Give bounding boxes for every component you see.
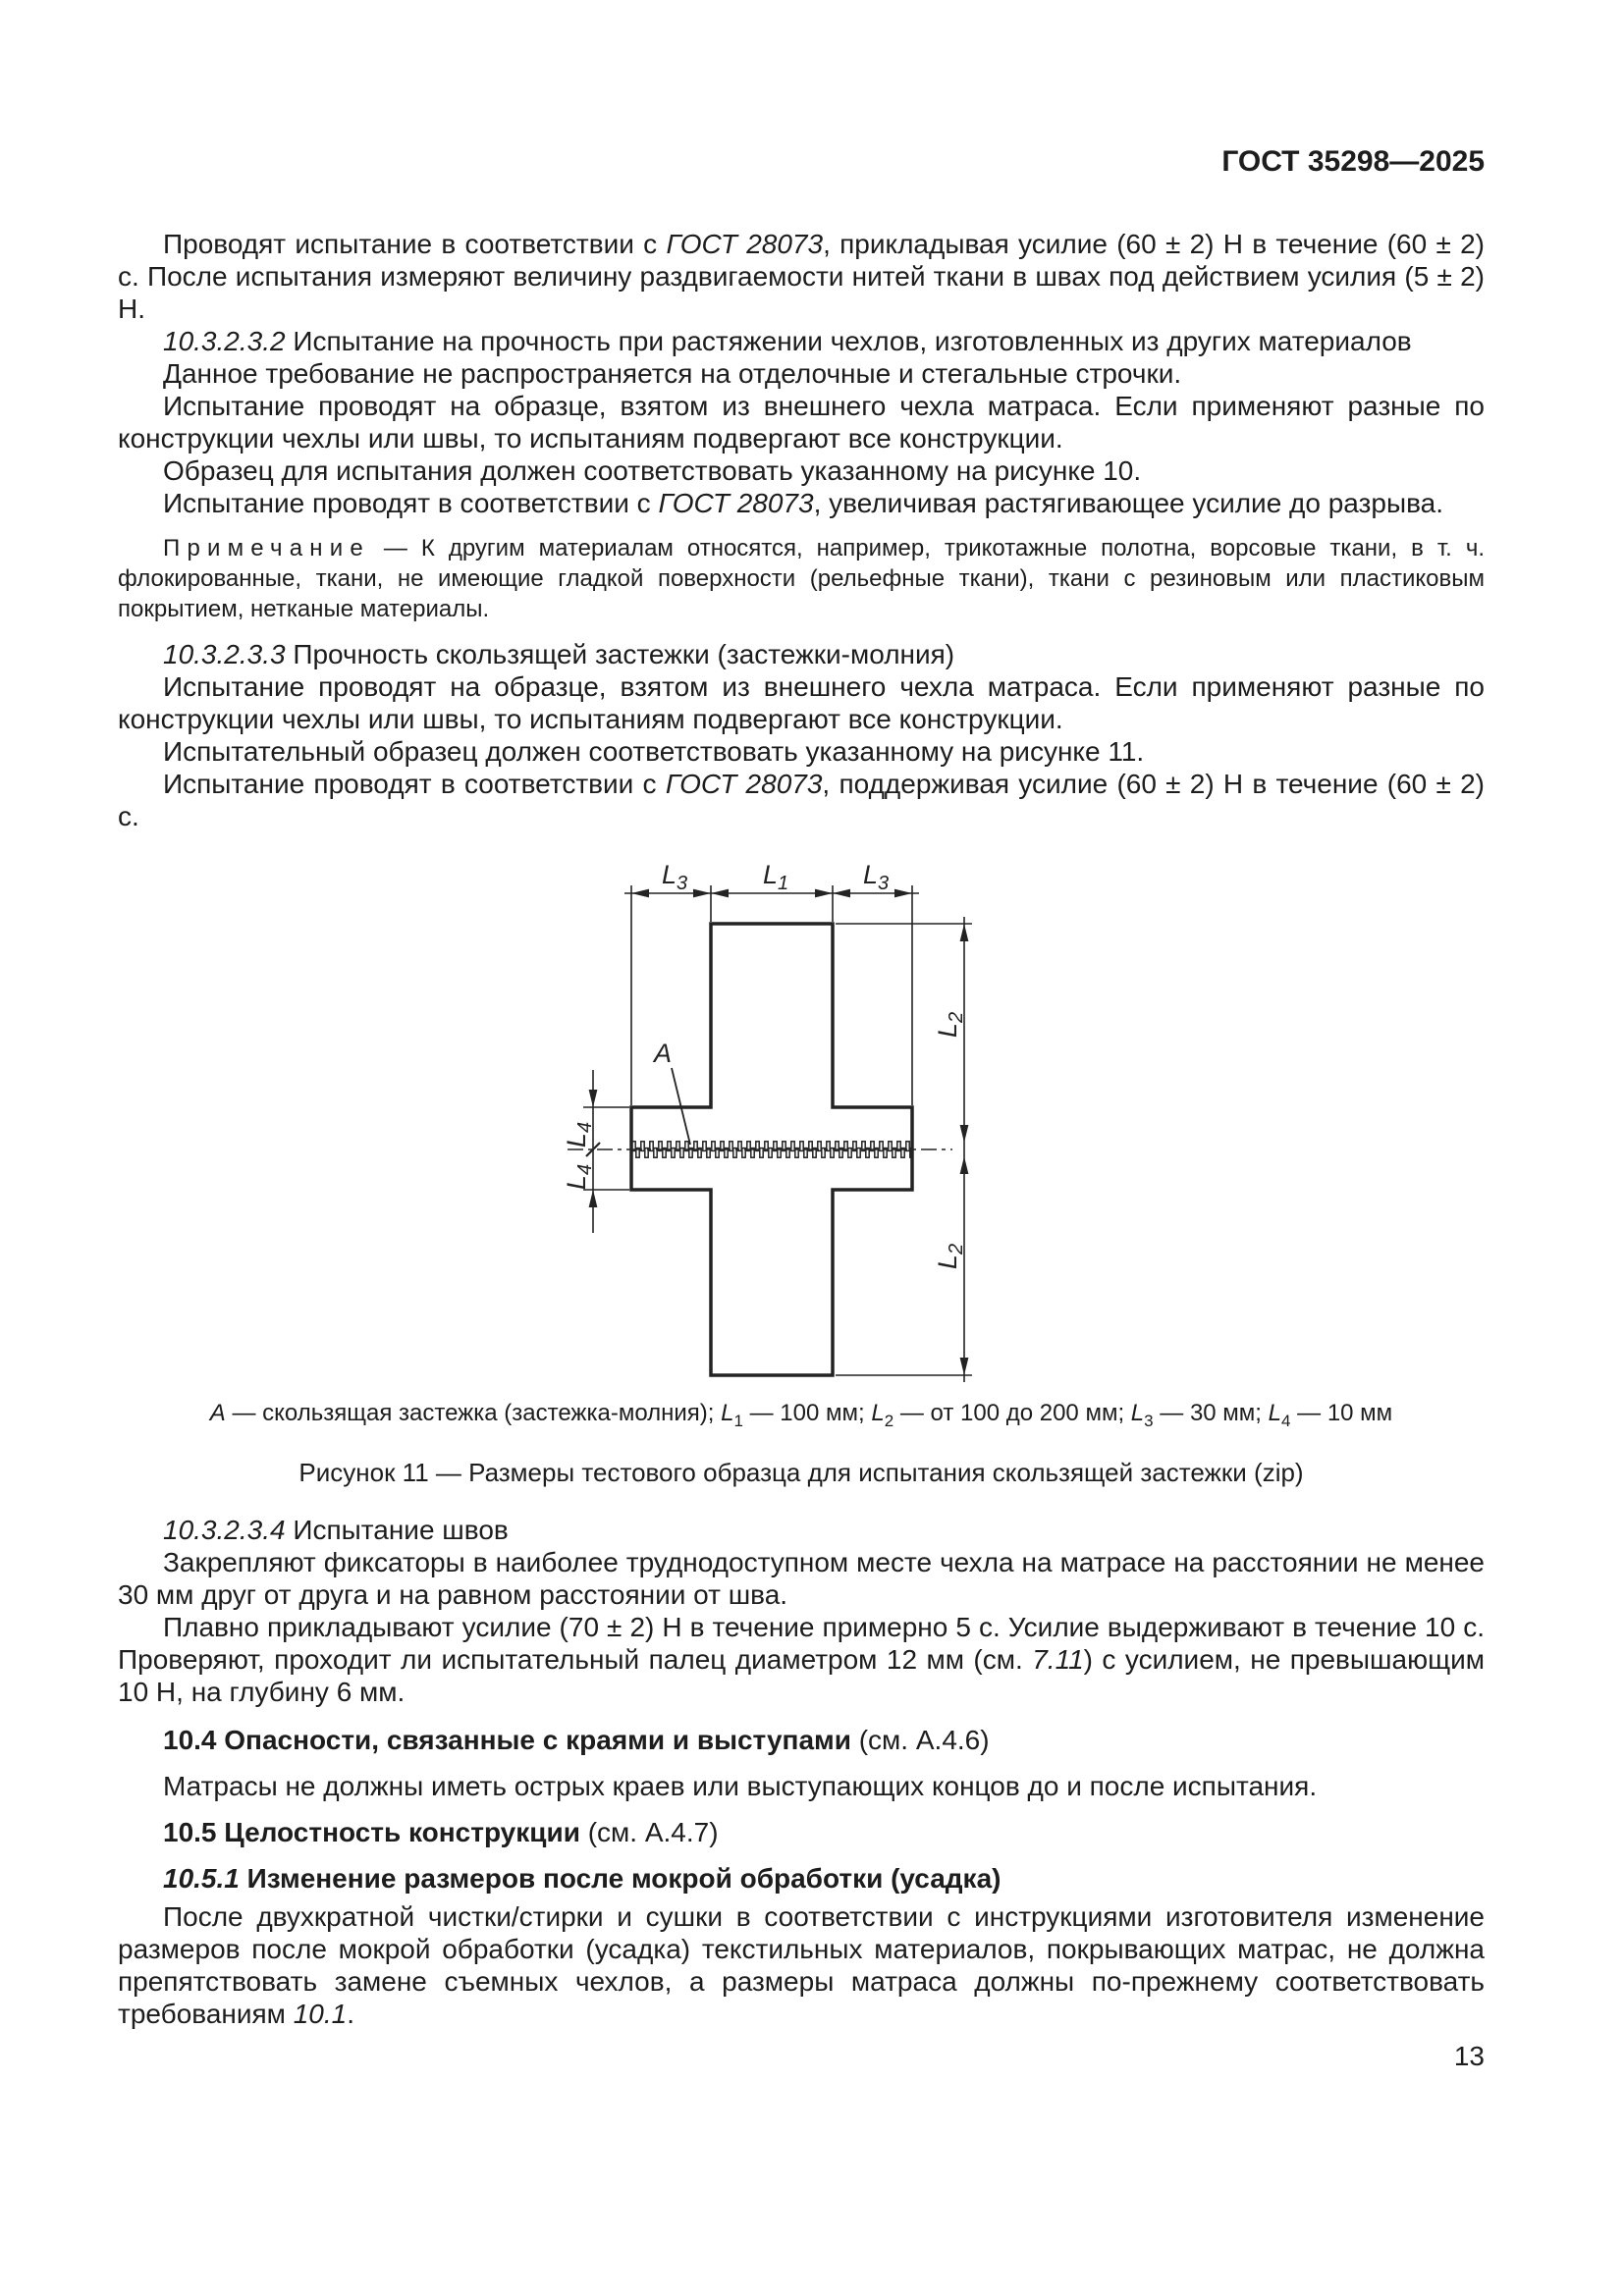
dim-label-l2-lower: L2 — [933, 1244, 967, 1269]
arrowhead — [631, 889, 649, 898]
dim-label-l4-lower: L4 — [562, 1164, 596, 1190]
dim-label-l3-right: L3 — [863, 860, 889, 894]
clause-heading-10-5: 10.5 Целостность конструкции (см. А.4.7) — [118, 1816, 1485, 1848]
paragraph-text: . — [347, 1999, 354, 2029]
legend-a: А — [210, 1400, 226, 1426]
paragraph-text: Закрепляют фиксаторы в наиболее труднодо… — [118, 1547, 1485, 1610]
paragraph-text: Образец для испытания должен соответство… — [163, 455, 1141, 486]
figure-legend: А — скользящая застежка (застежка-молния… — [118, 1399, 1485, 1436]
paragraph-text: Испытательный образец должен соответство… — [163, 736, 1144, 767]
standard-number: ГОСТ 35298—2025 — [1221, 145, 1485, 178]
paragraph-text: Данное требование не распространяется на… — [163, 358, 1181, 389]
arrowhead — [960, 924, 969, 941]
legend-text: — скользящая застежка (застежка-молния); — [226, 1400, 721, 1426]
dim-label-l4-upper: L4 — [562, 1122, 596, 1148]
clause-heading-10-3-2-3-3: 10.3.2.3.3 Прочность скользящей застежки… — [118, 638, 1485, 670]
arrowhead — [711, 889, 729, 898]
paragraph-text: Испытание проводят в соответствии с — [163, 488, 658, 518]
test-specimen-diagram: L3 L1 L3 L2 L2 L4 — [560, 854, 992, 1391]
paragraph: Проводят испытание в соответствии с ГОСТ… — [118, 228, 1485, 325]
clause-reference: (см. А.4.7) — [580, 1817, 719, 1847]
clause-reference: 10.1 — [294, 1999, 348, 2029]
paragraph: После двухкратной чистки/стирки и сушки … — [118, 1900, 1485, 2030]
paragraph: Матрасы не должны иметь острых краев или… — [118, 1770, 1485, 1802]
legend-text: — от 100 до 200 мм; — [893, 1400, 1131, 1426]
legend-text: — 10 мм — [1290, 1400, 1392, 1426]
legend-l: L — [1269, 1400, 1281, 1426]
clause-heading-10-5-1: 10.5.1 Изменение размеров после мокрой о… — [118, 1862, 1485, 1895]
paragraph-text: Испытание проводят в соответствии с — [163, 769, 666, 799]
gost-reference: ГОСТ 28073 — [658, 488, 813, 518]
clause-number: 10.3.2.3.3 — [163, 639, 286, 669]
legend-sub: 2 — [885, 1412, 893, 1430]
clause-title: 10.5 Целостность конструкции — [163, 1817, 580, 1847]
clause-heading-10-3-2-3-4: 10.3.2.3.4 Испытание швов — [118, 1514, 1485, 1546]
clause-number: 10.3.2.3.4 — [163, 1515, 286, 1545]
legend-l: L — [1131, 1400, 1144, 1426]
dim-label-l2-upper: L2 — [933, 1012, 967, 1038]
clause-heading-10-4: 10.4 Опасности, связанные с краями и выс… — [118, 1724, 1485, 1756]
arrowhead — [589, 1190, 598, 1207]
clause-number: 10.5.1 — [163, 1863, 240, 1894]
clause-number: 10.3.2.3.2 — [163, 326, 286, 356]
gost-reference: ГОСТ 28073 — [666, 229, 823, 259]
arrowhead — [894, 889, 912, 898]
paragraph: Образец для испытания должен соответство… — [118, 454, 1485, 487]
page-number: 13 — [118, 2040, 1485, 2072]
paragraph: Данное требование не распространяется на… — [118, 357, 1485, 390]
zipper-callout-label: A — [652, 1039, 672, 1068]
legend-l: L — [721, 1400, 733, 1426]
arrowhead — [960, 1125, 969, 1143]
legend-sub: 1 — [734, 1412, 743, 1430]
paragraph: Испытательный образец должен соответство… — [118, 735, 1485, 768]
paragraph-text: Проводят испытание в соответствии с — [163, 229, 666, 259]
figure-11-drawing: L3 L1 L3 L2 L2 L4 — [560, 854, 992, 1391]
clause-reference: (см. А.4.6) — [851, 1725, 990, 1755]
text-block: ГОСТ 35298—2025 Проводят испытание в соо… — [118, 0, 1485, 2072]
legend-text: — 100 мм; — [743, 1400, 871, 1426]
page-header-standard: ГОСТ 35298—2025 — [118, 145, 1485, 179]
clause-title: Испытание на прочность при растяжении че… — [286, 326, 1412, 356]
paragraph: Испытание проводят на образце, взятом из… — [118, 670, 1485, 735]
clause-heading-10-3-2-3-2: 10.3.2.3.2 Испытание на прочность при ра… — [118, 325, 1485, 357]
zipper-teeth — [631, 1141, 912, 1158]
clause-title: Изменение размеров после мокрой обработк… — [240, 1863, 1001, 1894]
paragraph-text: Испытание проводят на образце, взятом из… — [118, 391, 1485, 454]
paragraph-text: Матрасы не должны иметь острых краев или… — [163, 1771, 1317, 1801]
legend-l: L — [871, 1400, 884, 1426]
clause-title: Прочность скользящей застежки (застежки-… — [286, 639, 955, 669]
document-page: ГОСТ 35298—2025 Проводят испытание в соо… — [0, 0, 1624, 2296]
arrowhead — [815, 889, 833, 898]
note-label: Примечание — [163, 535, 370, 561]
paragraph-text: , увеличивая растягивающее усилие до раз… — [814, 488, 1443, 518]
paragraph: Испытание проводят в соответствии с ГОСТ… — [118, 768, 1485, 832]
gost-reference: ГОСТ 28073 — [666, 769, 823, 799]
paragraph: Закрепляют фиксаторы в наиболее труднодо… — [118, 1546, 1485, 1611]
figure-caption: Рисунок 11 — Размеры тестового образца д… — [118, 1458, 1485, 1488]
clause-reference: 7.11 — [1032, 1644, 1083, 1675]
clause-title: Испытание швов — [286, 1515, 509, 1545]
arrowhead — [960, 1156, 969, 1174]
paragraph: Испытание проводят в соответствии с ГОСТ… — [118, 487, 1485, 519]
legend-text: — 30 мм; — [1154, 1400, 1269, 1426]
arrowhead — [693, 889, 711, 898]
note-block: Примечание — К другим материалам относят… — [118, 533, 1485, 624]
arrowhead — [960, 1358, 969, 1375]
clause-title: 10.4 Опасности, связанные с краями и выс… — [163, 1725, 851, 1755]
arrowhead — [833, 889, 850, 898]
legend-sub: 3 — [1144, 1412, 1153, 1430]
dim-label-l3-left: L3 — [662, 860, 687, 894]
dim-label-l1: L1 — [763, 860, 788, 894]
paragraph: Испытание проводят на образце, взятом из… — [118, 390, 1485, 454]
paragraph: Плавно прикладывают усилие (70 ± 2) Н в … — [118, 1611, 1485, 1708]
paragraph-text: Испытание проводят на образце, взятом из… — [118, 671, 1485, 734]
arrowhead — [589, 1090, 598, 1107]
